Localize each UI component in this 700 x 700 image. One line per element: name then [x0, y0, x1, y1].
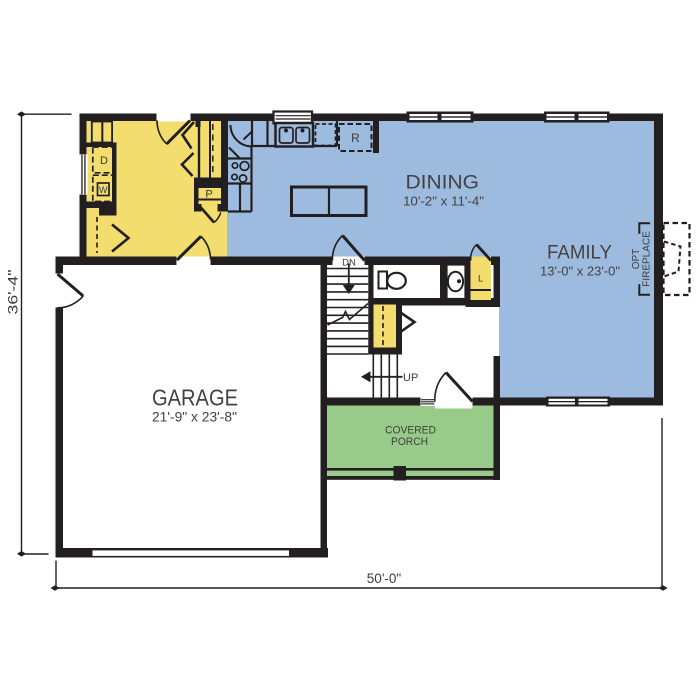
svg-text:FAMILY: FAMILY: [547, 243, 612, 264]
svg-text:D: D: [100, 155, 108, 167]
svg-text:10'-2" x 11'-4": 10'-2" x 11'-4": [403, 194, 484, 209]
svg-text:COVERED: COVERED: [385, 425, 436, 437]
svg-text:P: P: [205, 189, 212, 201]
svg-text:PORCH: PORCH: [391, 436, 428, 448]
svg-text:13'-0" x 23'-0": 13'-0" x 23'-0": [540, 264, 620, 279]
svg-text:R: R: [351, 131, 360, 145]
svg-text:UP: UP: [403, 372, 418, 384]
svg-text:L: L: [478, 274, 483, 285]
svg-text:DN: DN: [342, 258, 356, 269]
svg-text:21'-9" x 23'-8": 21'-9" x 23'-8": [152, 409, 237, 425]
svg-text:GARAGE: GARAGE: [152, 385, 238, 411]
svg-text:W: W: [99, 185, 108, 195]
svg-text:50'-0": 50'-0": [367, 571, 402, 586]
svg-text:DINING: DINING: [406, 173, 480, 194]
svg-text:36'-4": 36'-4": [6, 269, 21, 314]
